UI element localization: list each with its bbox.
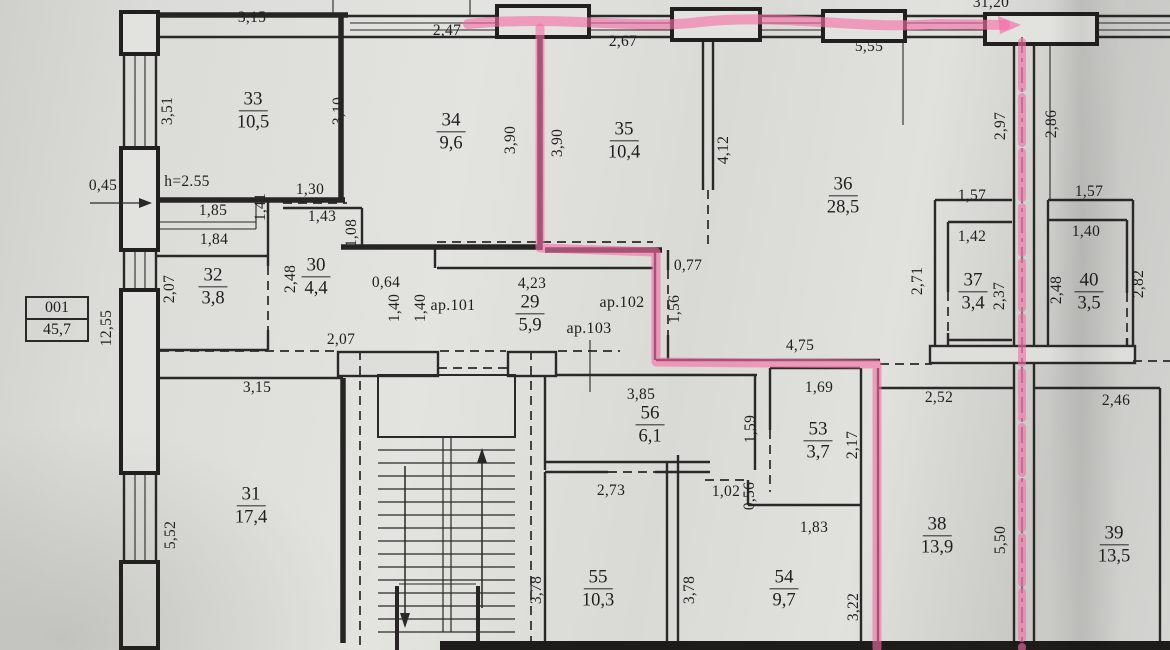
dim-room39-top: 2,46 — [1102, 392, 1130, 410]
room-label-30: 30 4,4 — [302, 255, 331, 298]
dim-top-right: 5,55 — [855, 38, 883, 56]
dim-room32-left: 2,07 — [161, 275, 179, 303]
room-label-56: 56 6,1 — [636, 403, 665, 446]
room-label-31: 31 17,4 — [235, 484, 267, 527]
dim-room35-right: 4,12 — [715, 136, 733, 164]
dim-room53-right: 2,17 — [844, 431, 862, 459]
room-number: 38 — [923, 514, 952, 536]
room-label-40: 40 3,5 — [1075, 270, 1104, 313]
room-label-33: 33 10,5 — [237, 89, 269, 132]
room-number: 40 — [1075, 270, 1104, 292]
room-area: 13,5 — [1098, 545, 1130, 566]
room-area: 28,5 — [827, 196, 859, 217]
staircase — [378, 375, 515, 632]
dim-room40-outer: 1,57 — [1075, 183, 1103, 201]
dim-room40-top: 1,40 — [1072, 223, 1100, 241]
dim-room30-left: 1,08 — [343, 219, 361, 247]
dim-hall-width-upper: 1,85 — [199, 202, 227, 220]
note-ceiling-height: h=2.55 — [164, 173, 209, 191]
room-area: 5,9 — [516, 314, 545, 335]
dim-wall-offset: 0,45 — [89, 177, 117, 195]
room-label-53: 53 3,7 — [804, 419, 833, 462]
room-area: 6,1 — [636, 425, 665, 446]
dim-room55-top: 2,73 — [597, 482, 625, 500]
legend-total-area: 45,7 — [27, 320, 87, 340]
dim-room40-right: 2,82 — [1130, 270, 1148, 298]
floor-plan: 001 45,7 3,15 2,47 2,67 5,55 31,20 0,45 … — [0, 0, 1170, 650]
stair-down-arrow — [400, 613, 410, 628]
dim-room31-top: 3,15 — [243, 379, 271, 397]
room-number: 54 — [770, 567, 799, 589]
dim-corridor-south: 4,75 — [786, 337, 814, 355]
room-area: 3,4 — [959, 292, 988, 313]
room-area: 3,8 — [199, 287, 228, 308]
room-number: 37 — [959, 270, 988, 292]
room-area: 9,7 — [770, 589, 799, 610]
room-label-38: 38 13,9 — [921, 514, 953, 557]
legend-box: 001 45,7 — [25, 296, 89, 342]
dim-room54-top: 1,83 — [800, 519, 828, 537]
under-stair-duct — [397, 586, 478, 650]
dim-corridor-door-right: 1,56 — [666, 295, 684, 323]
room-area: 3,5 — [1075, 292, 1104, 313]
dim-room53-top: 1,69 — [805, 379, 833, 397]
dim-notch-width: 1,02 — [712, 483, 740, 501]
room-number: 34 — [437, 110, 466, 132]
room-label-39: 39 13,5 — [1098, 523, 1130, 566]
interior-walls — [120, 15, 1170, 650]
room-label-37: 37 3,4 — [959, 270, 988, 313]
dim-left-lower: 5,52 — [162, 521, 180, 549]
dim-room38-top: 2,52 — [925, 389, 953, 407]
room-label-36: 36 28,5 — [827, 174, 859, 217]
dim-room37-left: 2,71 — [909, 267, 927, 295]
bottom-outer-wall — [440, 641, 1170, 650]
dim-room38-right: 5,50 — [992, 526, 1010, 554]
dim-room33-right: 3,10 — [330, 97, 348, 125]
room-number: 35 — [610, 119, 639, 141]
dim-room54-right: 3,22 — [845, 593, 863, 621]
dim-room30-top: 1,43 — [308, 208, 336, 226]
room-area: 10,3 — [582, 589, 614, 610]
dim-room40-left: 2,48 — [1048, 276, 1066, 304]
room-area: 3,7 — [804, 441, 833, 462]
room-number: 32 — [199, 265, 228, 287]
dim-corridor-door2: 1,40 — [412, 294, 430, 322]
dim-room37-right: 2,37 — [991, 282, 1009, 310]
dim-hall-door: 1,41 — [252, 193, 270, 221]
room-number: 33 — [239, 89, 268, 111]
room-label-54: 54 9,7 — [770, 567, 799, 610]
apartment-102-label: ар.102 — [600, 294, 645, 312]
room-label-35: 35 10,4 — [608, 119, 640, 162]
dim-room37-outer: 1,57 — [958, 187, 986, 205]
room-area: 4,4 — [302, 277, 331, 298]
dim-room56-top: 3,85 — [627, 386, 655, 404]
dim-top-room34: 2,47 — [433, 22, 461, 40]
legend-code: 001 — [27, 298, 87, 320]
dim-room34-right: 3,90 — [502, 126, 520, 154]
room-label-32: 32 3,8 — [199, 265, 228, 308]
room-label-34: 34 9,6 — [437, 110, 466, 153]
dim-shaft-left: 2,97 — [992, 112, 1010, 140]
dim-room36-notch: 0,77 — [674, 257, 702, 275]
dim-notch-height: 0,56 — [741, 482, 759, 510]
dim-top-total: 31,20 — [973, 0, 1009, 12]
room-area: 9,6 — [437, 132, 466, 153]
dim-corridor-door1: 1,40 — [386, 294, 404, 322]
apartment-103-label: ар.103 — [567, 320, 612, 338]
dim-room32-bottom: 2,07 — [327, 331, 355, 349]
room-number: 53 — [804, 419, 833, 441]
dim-room56-right: 1,59 — [742, 415, 760, 443]
room-number: 55 — [584, 567, 613, 589]
room-area: 10,5 — [237, 111, 269, 132]
dim-shaft-right: 2,86 — [1043, 110, 1061, 138]
dim-hall-width-lower: 1,84 — [200, 231, 228, 249]
room-number: 31 — [237, 484, 266, 506]
dim-room37-top: 1,42 — [958, 228, 986, 246]
room-area: 13,9 — [921, 536, 953, 557]
room-number: 36 — [829, 174, 858, 196]
room-number: 29 — [516, 292, 545, 314]
room-label-29: 29 5,9 — [516, 292, 545, 335]
dim-room54-left: 3,78 — [681, 576, 699, 604]
dim-room35-left: 3,90 — [549, 129, 567, 157]
dim-room30-door-top: 1,30 — [296, 181, 324, 199]
dim-corridor-offset: 0,64 — [372, 274, 400, 292]
apartment-101-label: ар.101 — [431, 297, 476, 315]
dim-top-room33: 3,15 — [238, 9, 266, 27]
dim-left-upper: 3,51 — [159, 97, 177, 125]
dim-top-room35: 2,67 — [609, 33, 637, 51]
dim-room55-left: 3,78 — [528, 576, 546, 604]
room-number: 30 — [302, 255, 331, 277]
dim-corridor-length: 4,23 — [518, 275, 546, 293]
dim-room30-door-side: 2,48 — [282, 265, 300, 293]
room-area: 17,4 — [235, 506, 267, 527]
room-number: 39 — [1100, 523, 1129, 545]
room-area: 10,4 — [608, 141, 640, 162]
room-label-55: 55 10,3 — [582, 567, 614, 610]
room-number: 56 — [636, 403, 665, 425]
dim-left-total: 12,55 — [98, 310, 116, 346]
